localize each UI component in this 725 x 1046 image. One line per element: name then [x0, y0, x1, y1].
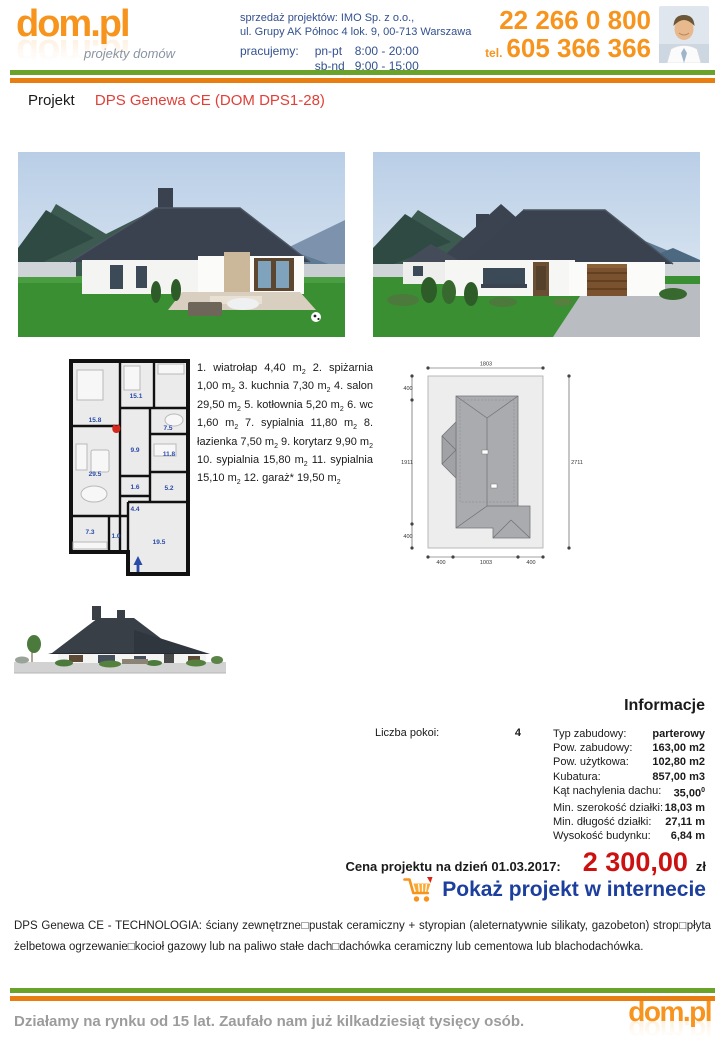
room-num: 9.: [281, 436, 290, 448]
degree-sup: 0: [701, 787, 705, 794]
room-area-unit: 2: [304, 461, 308, 468]
tel-label: tel.: [485, 46, 502, 60]
room-name: sypialnia: [216, 454, 259, 466]
dim-left-bottom: 400: [403, 534, 412, 540]
dim-top: 1803: [480, 362, 492, 368]
phone-main: 22 266 0 800: [485, 7, 651, 34]
room-entry: 5. kotłownia 5,20 m2: [244, 399, 344, 411]
room-name: wc: [360, 399, 373, 411]
room-num: 10.: [197, 454, 212, 466]
logo-tagline: projekty domów: [84, 46, 175, 61]
hours-weekday-label: pn-pt: [315, 44, 345, 60]
project-label: Projekt: [28, 92, 75, 109]
room-entry: 10. sypialnia 15,80 m2: [197, 454, 308, 466]
room-area-unit: 2: [302, 369, 306, 376]
show-project-link[interactable]: Pokaż projekt w internecie: [400, 876, 706, 903]
room-area: 1,00 m: [197, 380, 231, 392]
room-area: 19,50 m: [297, 472, 337, 484]
price-currency: zł: [696, 859, 706, 874]
agent-photo: [659, 6, 709, 63]
room-num: 12.: [244, 472, 259, 484]
info-row: Typ zabudowy: parterowy: [553, 727, 705, 741]
info-section: Informacje Liczba pokoi: 4 Typ zabudowy:…: [375, 697, 705, 843]
room-name: garaż*: [262, 472, 294, 484]
info-row: Kąt nachylenia dachu: 35,000: [553, 784, 705, 801]
dim-right: 2711: [571, 460, 583, 466]
plan-label-7-3: 7.3: [85, 529, 94, 536]
cart-icon: [403, 876, 433, 903]
room-name: kuchnia: [251, 380, 289, 392]
plan-label-9-9: 9.9: [130, 447, 139, 454]
room-num: 7.: [245, 417, 254, 429]
info-row: Wysokość budynku: 6,84 m: [553, 829, 705, 843]
info-heading: Informacje: [375, 697, 705, 715]
room-num: 2.: [313, 362, 322, 374]
info-row: Kubatura: 857,00 m3: [553, 770, 705, 784]
plan-label-1-6: 1.6: [130, 484, 139, 491]
room-num: 5.: [244, 399, 253, 411]
room-area-unit: 2: [327, 388, 331, 395]
phone-block: 22 266 0 800 tel.605 366 366: [485, 7, 651, 63]
room-area-unit: 2: [237, 406, 241, 413]
plan-label-7-5: 7.5: [163, 425, 172, 432]
footer-slogan: Działamy na rynku od 15 lat. Zaufało nam…: [14, 1013, 524, 1030]
house-render-garden-view: [18, 152, 345, 337]
project-title-row: Projekt DPS Genewa CE (DOM DPS1-28): [28, 92, 325, 109]
dim-left-top: 400: [403, 386, 412, 392]
room-name: sypialnia: [261, 417, 304, 429]
room-area-unit: 2: [340, 406, 344, 413]
info-label: Min. szerokość działki:: [553, 801, 663, 815]
room-num: 6.: [347, 399, 356, 411]
plan-label-4-4: 4.4: [130, 506, 139, 513]
price-amount: 2 300,00: [583, 847, 688, 878]
house-render-front-view: [373, 152, 700, 337]
room-area-unit: 2: [274, 443, 278, 450]
project-description: DPS Genewa CE - TECHNOLOGIA: ściany zewn…: [14, 916, 711, 957]
soccer-ball: [311, 312, 321, 322]
info-label: Min. długość działki:: [553, 815, 651, 829]
footer-logo-reflection: dom.pl: [628, 1018, 711, 1043]
room-area: 29,50 m: [197, 399, 237, 411]
info-label: Pow. użytkowa:: [553, 755, 629, 769]
info-value: 6,84 m: [671, 829, 705, 843]
room-num: 1.: [197, 362, 206, 374]
room-area: 4,40 m: [264, 362, 302, 374]
room-list: 1. wiatrołap 4,40 m2 2. spiżarnia 1,00 m…: [197, 360, 373, 489]
info-label: Kąt nachylenia dachu:: [553, 784, 661, 801]
info-row: Pow. zabudowy: 163,00 m2: [553, 741, 705, 755]
room-area: 1,60 m: [197, 417, 234, 429]
room-area-unit: 2: [369, 443, 373, 450]
dim-bottom-right: 400: [526, 560, 535, 564]
room-area-unit: 2: [234, 424, 238, 431]
sales-line-1: sprzedaż projektów: IMO Sp. z o.o.,: [240, 11, 471, 25]
header-divider: [10, 70, 715, 84]
contact-block: sprzedaż projektów: IMO Sp. z o.o., ul. …: [240, 11, 471, 75]
room-name: sypialnia: [330, 454, 373, 466]
room-entry: 3. kuchnia 7,30 m2: [238, 380, 330, 392]
plan-label-1-0: 1.0: [111, 533, 120, 540]
room-entry: 9. korytarz 9,90 m2: [281, 436, 373, 448]
info-value: 163,00 m2: [652, 741, 705, 755]
room-area-unit: 2: [353, 424, 357, 431]
hours-weekday-value: 8:00 - 20:00: [355, 44, 419, 60]
show-project-link-text[interactable]: Pokaż projekt w internecie: [442, 878, 706, 902]
room-entry: 12. garaż* 19,50 m2: [244, 472, 341, 484]
info-row: Pow. użytkowa: 102,80 m2: [553, 755, 705, 769]
project-name: DPS Genewa CE (DOM DPS1-28): [95, 92, 325, 109]
price-label: Cena projektu na dzień 01.03.2017:: [345, 859, 560, 874]
footer: Działamy na rynku od 15 lat. Zaufało nam…: [14, 999, 711, 1043]
room-area: 15,80 m: [263, 454, 304, 466]
info-value: 102,80 m2: [652, 755, 705, 769]
dim-bottom-left: 400: [436, 560, 445, 564]
info-label: Kubatura:: [553, 770, 601, 784]
plan-label-11-8: 11.8: [163, 451, 176, 458]
room-num: 11.: [312, 454, 326, 466]
room-area-unit: 2: [337, 479, 341, 486]
plan-label-5-2: 5.2: [164, 485, 173, 492]
info-value: 18,03 m: [665, 801, 705, 815]
room-area-unit: 2: [231, 388, 235, 395]
floor-plan-drawing: 15.8 15.1 7.5 9.9 11.8 29.5 1.6 5.2 4.4 …: [64, 358, 195, 578]
room-num: 3.: [238, 380, 247, 392]
room-area: 11,80 m: [311, 417, 354, 429]
info-row: Min. szerokość działki: 18,03 m: [553, 801, 705, 815]
info-value: parterowy: [652, 727, 705, 741]
room-name: kotłownia: [257, 399, 303, 411]
elevation-drawing: [14, 596, 226, 684]
footer-logo: dom.pl dom.pl: [628, 999, 711, 1043]
plan-label-15-1: 15.1: [130, 393, 143, 400]
info-label: Pow. zabudowy:: [553, 741, 633, 755]
room-name: spiżarnia: [329, 362, 373, 374]
info-value: 857,00 m3: [652, 770, 705, 784]
room-name: salon: [347, 380, 373, 392]
rooms-count-label: Liczba pokoi:: [375, 727, 439, 739]
rooms-count-row: Liczba pokoi: 4: [375, 727, 521, 739]
plan-label-29-5: 29.5: [89, 471, 102, 478]
room-entry: 7. sypialnia 11,80 m2: [245, 417, 357, 429]
room-num: 4.: [334, 380, 343, 392]
price-row: Cena projektu na dzień 01.03.2017: 2 300…: [380, 847, 706, 878]
dim-left-mid: 1911: [401, 460, 413, 466]
dim-bottom-mid: 1003: [480, 560, 492, 564]
room-num: 8.: [364, 417, 373, 429]
phone-mobile: 605 366 366: [506, 33, 651, 63]
plan-label-19-5: 19.5: [153, 539, 166, 546]
info-value: 27,11 m: [665, 815, 705, 829]
room-area: 15,10 m: [197, 472, 237, 484]
plan-label-15-8: 15.8: [89, 417, 102, 424]
room-name: wiatrołap: [213, 362, 257, 374]
info-value: 35,00: [674, 787, 702, 799]
info-row: Min. długość działki: 27,11 m: [553, 815, 705, 829]
sales-line-2: ul. Grupy AK Północ 4 lok. 9, 00-713 War…: [240, 25, 471, 39]
room-area: 9,90 m: [335, 436, 369, 448]
room-name: korytarz: [293, 436, 332, 448]
room-area: 7,30 m: [293, 380, 327, 392]
info-label: Typ zabudowy:: [553, 727, 626, 741]
room-name: łazienka: [197, 436, 237, 448]
room-area: 5,20 m: [306, 399, 340, 411]
room-area-unit: 2: [237, 479, 241, 486]
info-label: Wysokość budynku:: [553, 829, 651, 843]
rooms-count-value: 4: [515, 727, 521, 739]
room-area: 7,50 m: [240, 436, 274, 448]
room-entry: 1. wiatrołap 4,40 m2: [197, 362, 306, 374]
site-plan-drawing: 1803 400 1911 400 2711 400 1003 400: [398, 360, 584, 564]
info-rows: Typ zabudowy: parterowy Pow. zabudowy: 1…: [553, 727, 705, 843]
render-images: [18, 152, 700, 337]
